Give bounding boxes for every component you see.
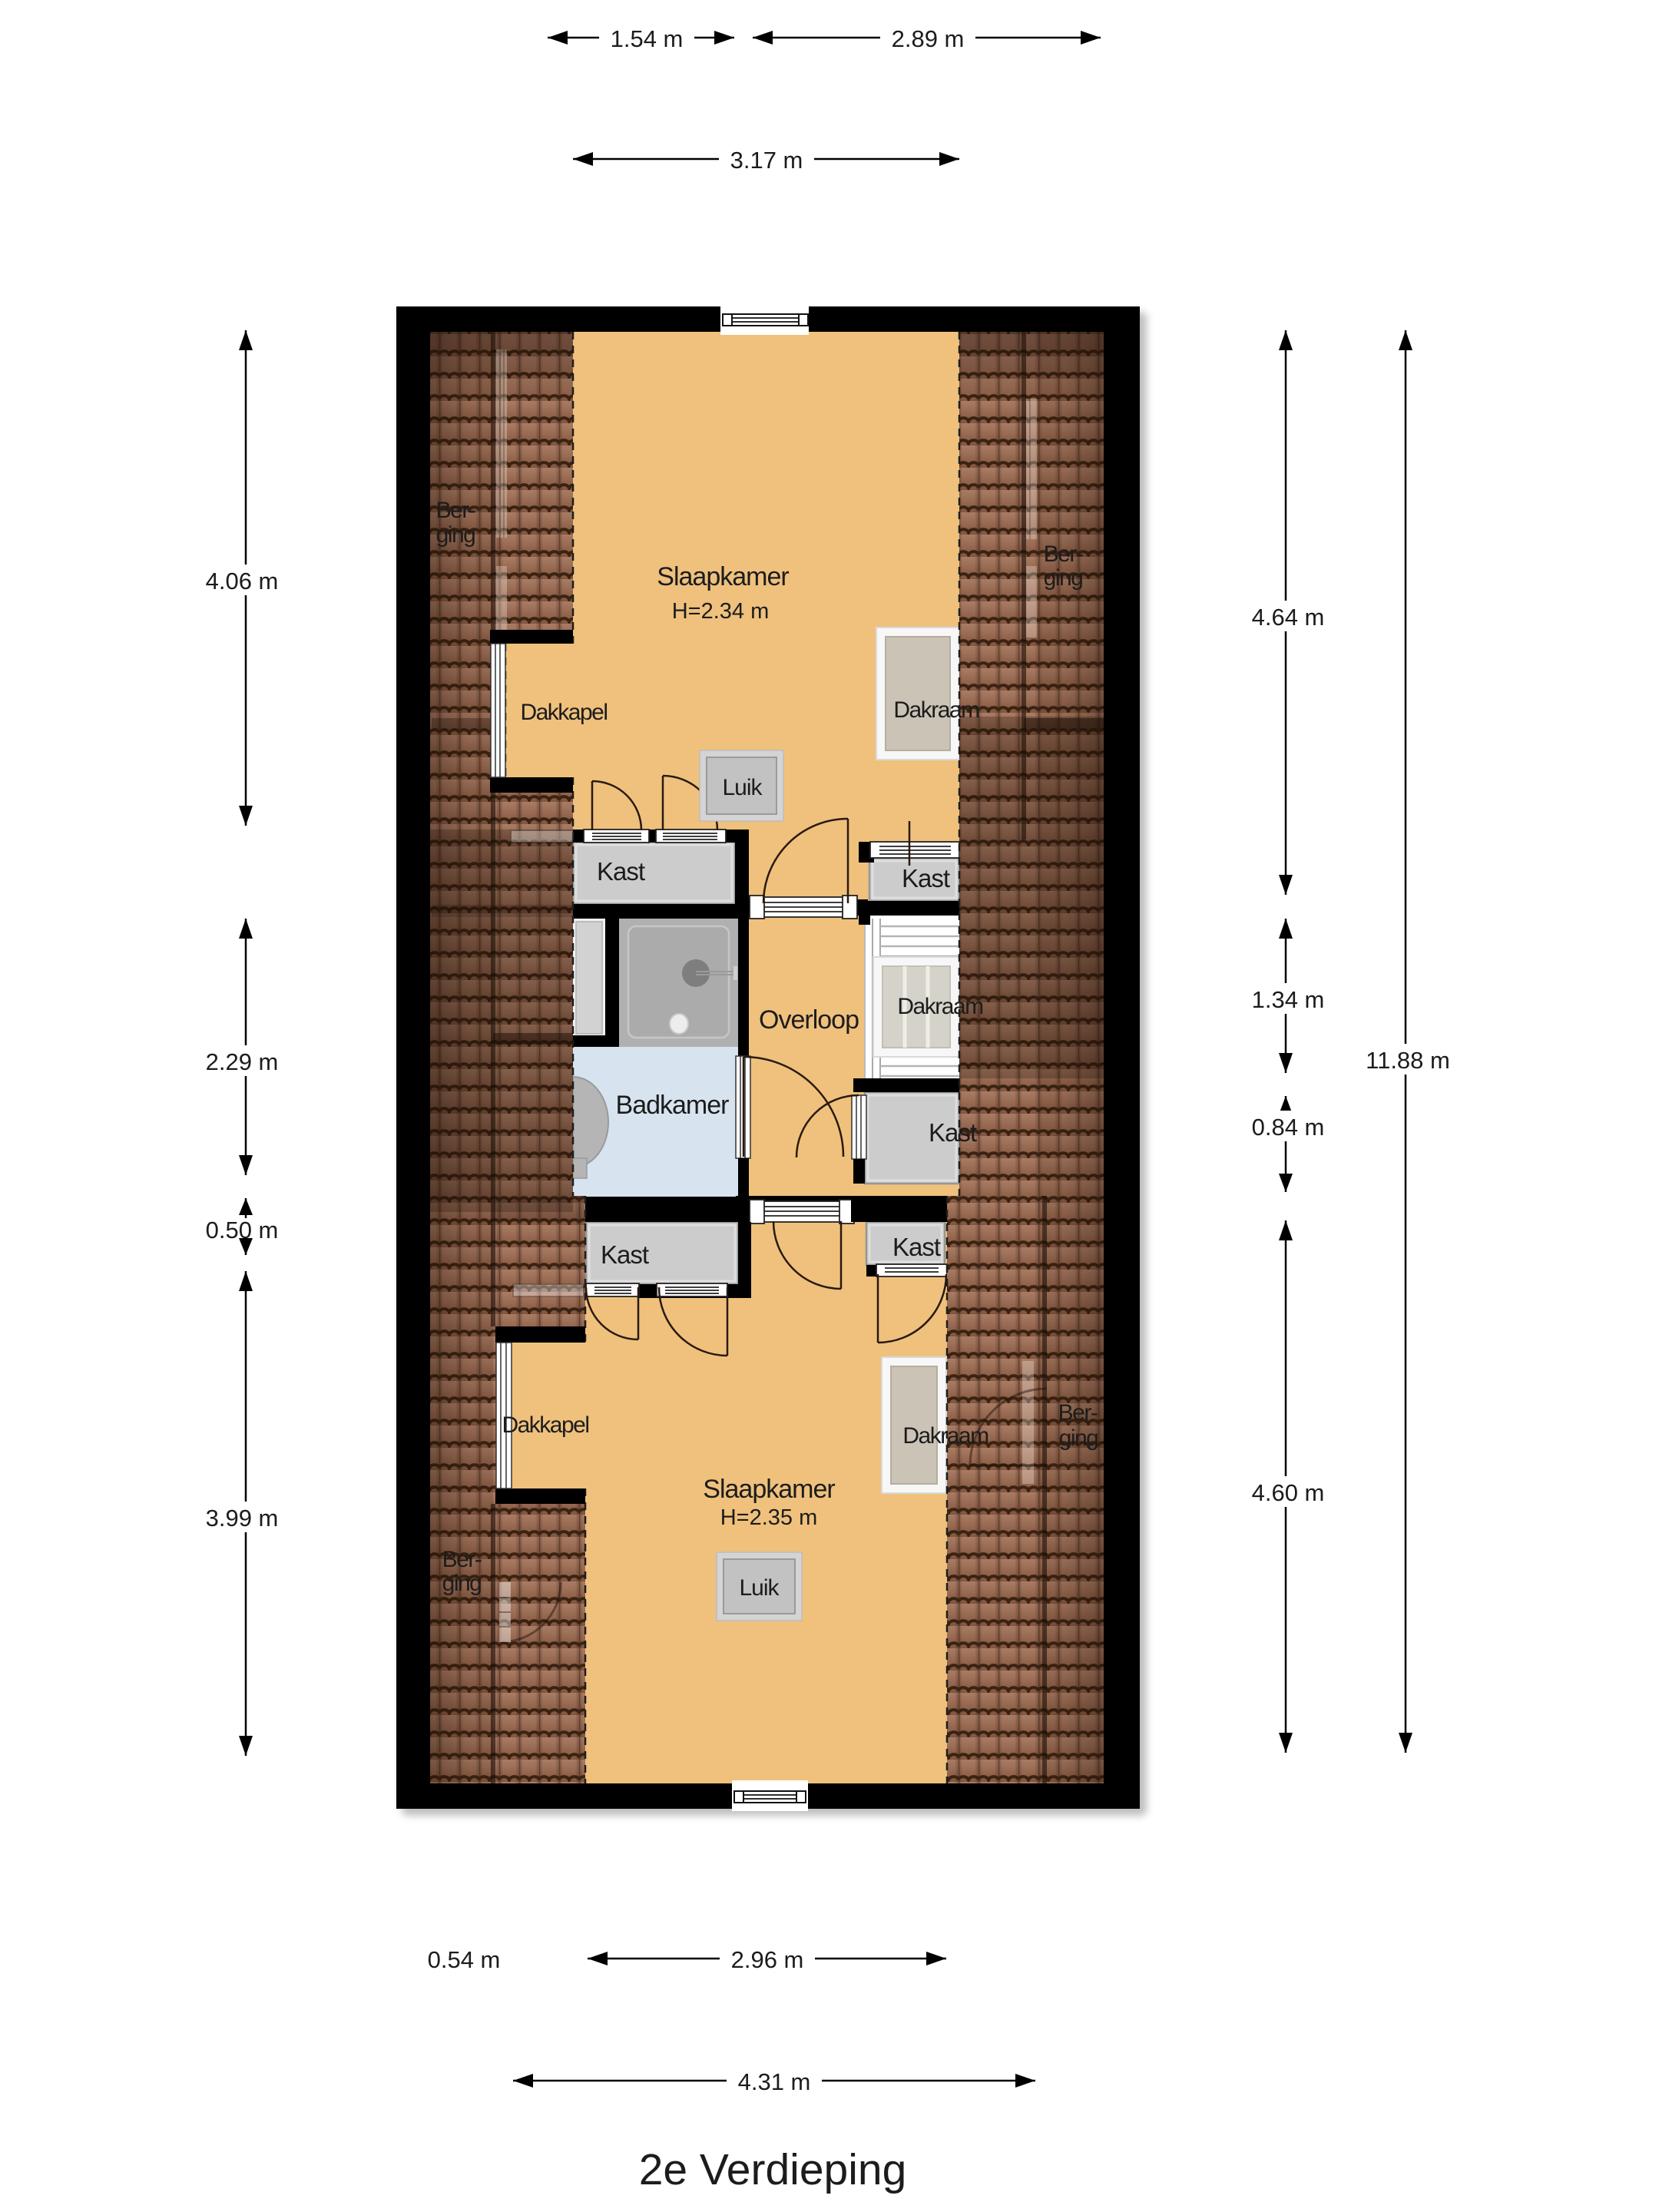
svg-text:4.64 m: 4.64 m <box>1252 604 1325 631</box>
svg-text:Dakraam: Dakraam <box>902 1423 988 1449</box>
svg-text:ging: ging <box>442 1571 482 1596</box>
svg-text:0.54 m: 0.54 m <box>428 1946 501 1973</box>
svg-text:1.54 m: 1.54 m <box>611 25 684 52</box>
svg-text:Ber-: Ber- <box>436 498 475 523</box>
svg-text:Luik: Luik <box>739 1575 780 1601</box>
svg-text:Ber-: Ber- <box>1058 1400 1098 1426</box>
svg-text:Kast: Kast <box>597 857 645 886</box>
svg-text:ging: ging <box>1059 1426 1098 1451</box>
svg-text:2.29 m: 2.29 m <box>206 1048 279 1075</box>
svg-text:Ber-: Ber- <box>442 1547 482 1572</box>
svg-text:Kast: Kast <box>601 1240 649 1269</box>
svg-text:4.06 m: 4.06 m <box>206 568 279 594</box>
svg-text:1.34 m: 1.34 m <box>1252 986 1325 1013</box>
svg-text:2e Verdieping: 2e Verdieping <box>639 2145 907 2194</box>
svg-text:3.17 m: 3.17 m <box>730 147 803 174</box>
svg-text:Dakraam: Dakraam <box>897 994 983 1019</box>
svg-text:Kast: Kast <box>929 1118 977 1147</box>
svg-text:2.89 m: 2.89 m <box>892 25 965 52</box>
svg-text:2.96 m: 2.96 m <box>731 1946 804 1973</box>
svg-text:0.50 m: 0.50 m <box>206 1217 279 1243</box>
svg-text:H=2.34 m: H=2.34 m <box>672 599 770 624</box>
svg-text:ging: ging <box>436 522 475 548</box>
svg-text:11.88 m: 11.88 m <box>1366 1047 1450 1074</box>
svg-text:Badkamer: Badkamer <box>616 1091 730 1120</box>
svg-text:Dakkapel: Dakkapel <box>520 700 607 725</box>
svg-text:Dakraam: Dakraam <box>893 697 979 723</box>
svg-text:4.60 m: 4.60 m <box>1252 1479 1325 1506</box>
svg-text:3.99 m: 3.99 m <box>206 1505 279 1532</box>
svg-text:Luik: Luik <box>722 775 763 800</box>
svg-text:Kast: Kast <box>902 864 950 892</box>
svg-text:Overloop: Overloop <box>759 1005 859 1035</box>
svg-text:H=2.35 m: H=2.35 m <box>720 1505 818 1530</box>
svg-text:Slaapkamer: Slaapkamer <box>657 562 789 591</box>
svg-text:Dakkapel: Dakkapel <box>502 1412 588 1438</box>
svg-text:Slaapkamer: Slaapkamer <box>703 1475 835 1504</box>
svg-text:Kast: Kast <box>892 1233 941 1261</box>
svg-text:ging: ging <box>1044 565 1083 591</box>
svg-text:Ber-: Ber- <box>1044 541 1083 567</box>
svg-text:4.31 m: 4.31 m <box>738 2068 811 2095</box>
svg-text:0.84 m: 0.84 m <box>1252 1114 1325 1141</box>
